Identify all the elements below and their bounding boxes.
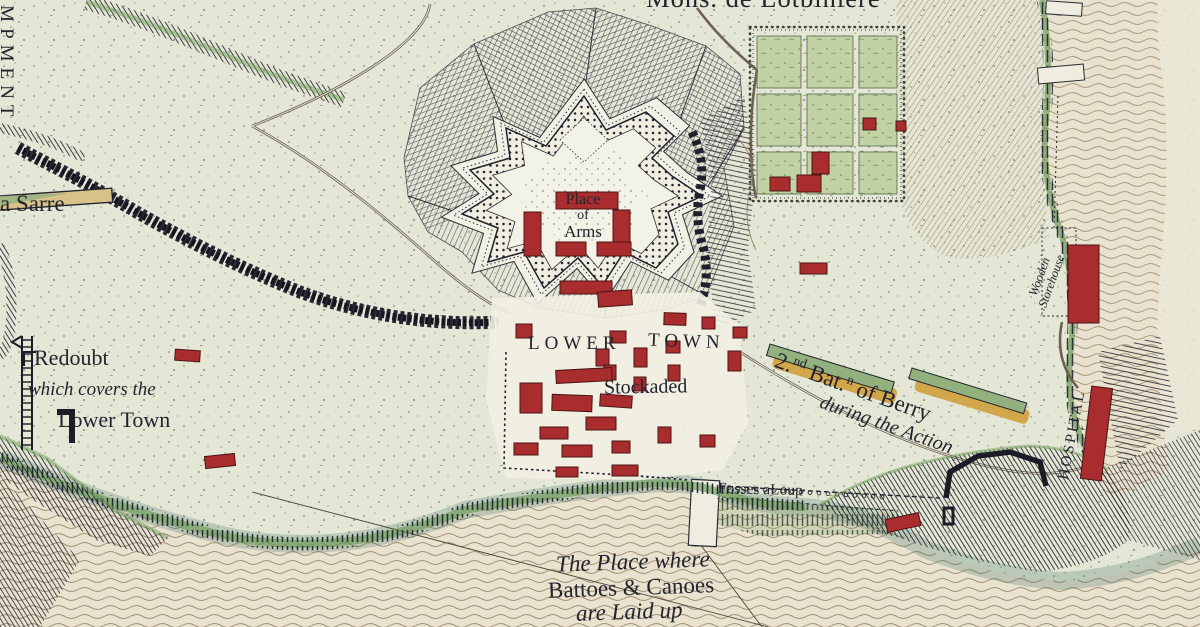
label-redoubt-3: Lower Town	[58, 408, 170, 431]
building	[597, 242, 631, 256]
building	[896, 121, 906, 131]
historic-siege-map: Mons. de Lotbiniere ENCAMPMENT La Sarre …	[0, 0, 1200, 627]
building	[863, 118, 876, 130]
building	[612, 441, 630, 453]
building	[658, 427, 671, 443]
label-town: TOWN	[648, 331, 725, 354]
building	[1068, 245, 1099, 323]
building	[514, 443, 538, 455]
label-fosses: Fosses aLoup	[718, 481, 803, 499]
label-lower: LOWER	[528, 334, 621, 354]
building	[702, 317, 715, 329]
building	[728, 351, 741, 371]
building	[634, 348, 647, 367]
building	[598, 290, 633, 307]
building	[812, 152, 829, 174]
building	[800, 263, 827, 274]
building	[700, 435, 715, 447]
label-place-of-arms: Place of Arms	[543, 192, 623, 241]
building	[552, 394, 593, 411]
building	[540, 427, 568, 439]
building	[797, 175, 821, 192]
building	[556, 467, 578, 477]
building	[733, 327, 747, 338]
label-officer: Mons. de Lotbiniere	[646, 0, 881, 13]
building	[556, 242, 586, 256]
building	[770, 177, 790, 191]
garden-plots	[750, 27, 904, 201]
building	[524, 212, 541, 256]
building	[204, 453, 235, 468]
slope-hatching	[896, 0, 1047, 259]
label-redoubt-2: which covers the	[28, 380, 156, 400]
building	[562, 445, 592, 457]
building	[664, 313, 686, 326]
label-stockaded: Stockaded	[604, 376, 688, 398]
label-encampment: ENCAMPMENT	[0, 0, 16, 136]
label-redoubt-1: Redoubt	[34, 346, 109, 369]
building	[612, 465, 638, 476]
label-la-sarre: La Sarre	[0, 192, 65, 216]
building	[586, 417, 616, 430]
building	[520, 383, 542, 413]
label-battoes-3: are Laid up	[576, 598, 683, 626]
building	[175, 349, 201, 362]
